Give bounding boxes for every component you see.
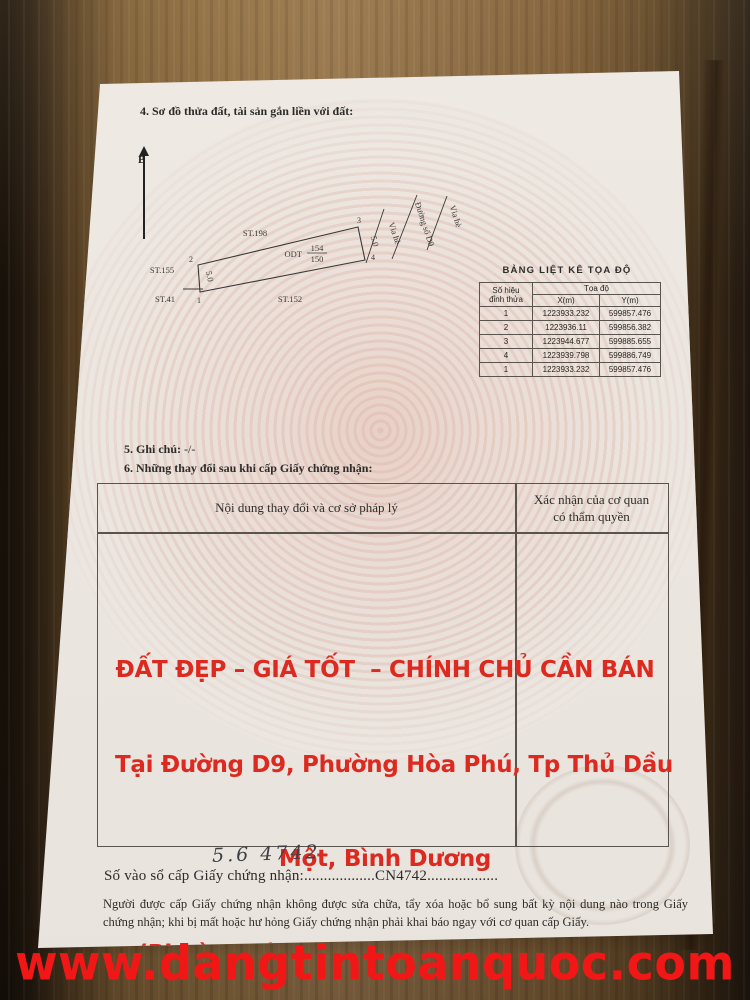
- section5-line: 5. Ghi chú: -/-: [124, 442, 195, 457]
- sidewalk-label-1: Vỉa hè: [387, 221, 404, 246]
- parcel-diagram: ST.198 ST.155 ST.41 ST.152 ODT 154 150 2…: [140, 193, 500, 318]
- coord-col-group: Tọa độ: [533, 283, 661, 295]
- coord-cell: 1223933.232: [533, 363, 600, 377]
- coord-col-x: X(m): [533, 295, 600, 307]
- ad-address-line1: Tại Đường D9, Phường Hòa Phú, Tp Thủ Dầu: [115, 750, 655, 782]
- corner-2-label: 2: [189, 255, 193, 264]
- coord-cell: 1223936.11: [533, 321, 600, 335]
- coord-cell: 599886.749: [600, 349, 661, 363]
- handwritten-note: 5.6 4742: [212, 841, 321, 867]
- adjacent-plot-bottom-left: ST.41: [155, 294, 175, 304]
- coord-row: 4 1223939.798 599886.749: [480, 349, 661, 363]
- adjacent-plot-top: ST.198: [243, 228, 267, 238]
- changes-header-left: Nội dung thay đổi và cơ sở pháp lý: [98, 500, 515, 516]
- coord-cell: 4: [480, 349, 533, 363]
- coord-row: 1 1223933.232 599857.476: [480, 363, 661, 377]
- parcel-type-label: ODT: [285, 249, 303, 259]
- serial-dots-right: ..................: [427, 868, 498, 884]
- dimension-right: 5.0: [369, 235, 381, 248]
- serial-dots-left: ..................: [304, 868, 375, 884]
- section5-value: -/-: [181, 442, 195, 456]
- coord-col-point-line2: đỉnh thửa: [489, 295, 523, 304]
- certificate-page: 4. Sơ đồ thửa đất, tài sản gắn liền với …: [0, 0, 750, 1000]
- coordinate-table: Số hiệu đỉnh thửa Tọa độ X(m) Y(m) 1 122…: [479, 282, 661, 377]
- sidewalk-label-2: Vỉa hè: [448, 204, 465, 229]
- coord-cell: 1: [480, 307, 533, 321]
- coord-cell: 2: [480, 321, 533, 335]
- coord-col-point-line1: Số hiệu: [492, 286, 519, 295]
- coord-col-point: Số hiệu đỉnh thửa: [480, 283, 533, 307]
- changes-table-header-line: [98, 532, 668, 534]
- section4-title: 4. Sơ đồ thửa đất, tài sản gắn liền với …: [140, 104, 353, 119]
- changes-header-right-line2: có thẩm quyền: [553, 509, 630, 524]
- section5-label: 5. Ghi chú:: [124, 442, 181, 456]
- coord-cell: 599857.476: [600, 307, 661, 321]
- footer-legal-note: Người được cấp Giấy chứng nhận không đượ…: [103, 896, 688, 931]
- dimension-left: 5.0: [204, 270, 216, 282]
- coord-header-row: Số hiệu đỉnh thửa Tọa độ: [480, 283, 661, 295]
- photo-of-land-certificate: 4. Sơ đồ thửa đất, tài sản gắn liền với …: [0, 0, 750, 1000]
- coord-cell: 1223933.232: [533, 307, 600, 321]
- serial-label: Số vào sổ cấp Giấy chứng nhận:: [104, 868, 304, 884]
- parcel-area: 150: [311, 254, 324, 264]
- changes-header-right-line1: Xác nhận của cơ quan: [534, 492, 649, 507]
- website-watermark: www.dangtintoanquoc.com: [0, 935, 750, 991]
- coord-cell: 599857.476: [600, 363, 661, 377]
- coord-cell: 1223944.677: [533, 335, 600, 349]
- adjacent-plot-bottom: ST.152: [278, 294, 302, 304]
- parcel-outline: [198, 227, 365, 292]
- parcel-number: 154: [311, 243, 325, 253]
- coord-row: 2 1223936.11 599856.382: [480, 321, 661, 335]
- adjacent-plot-left: ST.155: [150, 265, 174, 275]
- coord-row: 3 1223944.677 599885.655: [480, 335, 661, 349]
- serial-value: CN4742: [375, 868, 427, 884]
- coord-col-y: Y(m): [600, 295, 661, 307]
- coord-row: 1 1223933.232 599857.476: [480, 307, 661, 321]
- corner-3-label: 3: [357, 216, 361, 225]
- corner-1-label: 1: [197, 296, 201, 305]
- coord-cell: 3: [480, 335, 533, 349]
- street-name-label: Đường số D9: [413, 201, 437, 248]
- changes-header-right: Xác nhận của cơ quan có thẩm quyền: [515, 491, 668, 525]
- section6-title: 6. Những thay đổi sau khi cấp Giấy chứng…: [124, 461, 372, 476]
- coord-cell: 599885.655: [600, 335, 661, 349]
- ad-headline: ĐẤT ĐẸP – GIÁ TỐT – CHÍNH CHỦ CẦN BÁN: [115, 655, 655, 687]
- coord-cell: 1: [480, 363, 533, 377]
- corner-4-label: 4: [371, 253, 375, 262]
- coord-table-title: BẢNG LIỆT KÊ TỌA ĐỘ: [481, 265, 653, 276]
- coord-cell: 1223939.798: [533, 349, 600, 363]
- serial-line: Số vào sổ cấp Giấy chứng nhận:..........…: [104, 868, 498, 885]
- coord-cell: 599856.382: [600, 321, 661, 335]
